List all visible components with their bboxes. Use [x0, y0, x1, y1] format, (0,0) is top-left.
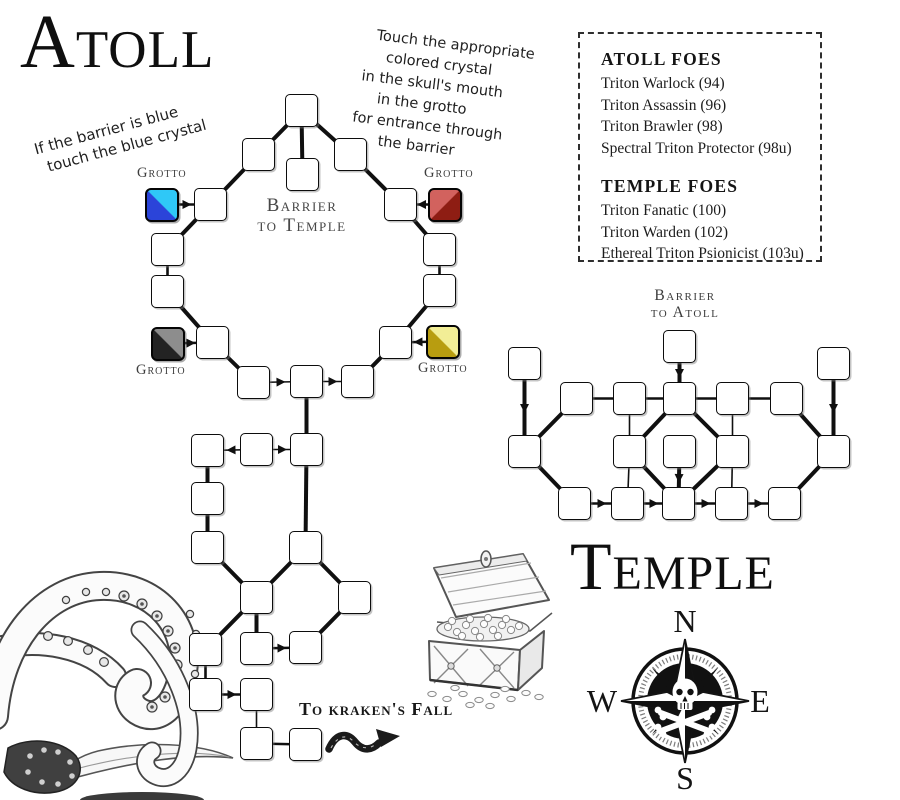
map-connection: [302, 111, 351, 155]
map-connection: [525, 399, 577, 452]
map-connection: [630, 452, 679, 504]
krakens-fall-arrow: [329, 729, 400, 749]
map-connection-arrow: [598, 499, 607, 508]
map-connection: [630, 399, 680, 452]
map-connection: [213, 343, 254, 383]
map-connection: [401, 205, 440, 250]
map-connection: [628, 452, 630, 504]
map-connection-arrow: [650, 499, 659, 508]
map-connection-arrow: [329, 377, 338, 386]
map-connection: [732, 452, 733, 504]
map-connection-arrow: [755, 499, 764, 508]
compass-e-label: E: [750, 683, 770, 719]
map-connection: [306, 598, 355, 648]
kraken-bottom-shadow: [80, 792, 204, 800]
map-connection: [680, 399, 733, 452]
map-connection: [787, 399, 834, 452]
map-connection-arrow: [186, 339, 195, 348]
map-connection-arrow: [520, 404, 529, 413]
map-connection-arrow: [417, 200, 426, 209]
map-connection: [306, 548, 355, 598]
map-connection: [206, 598, 257, 650]
map-connection: [211, 155, 259, 205]
map-connection: [351, 155, 401, 205]
map-connection: [208, 548, 257, 598]
map-connection: [302, 111, 303, 175]
map-connection: [396, 291, 440, 343]
map-connection-arrow: [228, 690, 237, 699]
map-connection-arrow: [675, 474, 684, 483]
compass-s-label: S: [676, 760, 694, 796]
map-page: N E S W Atoll Temple If the barrier is b…: [0, 0, 900, 800]
map-connection-arrow: [277, 644, 286, 653]
compass-n-label: N: [673, 603, 696, 639]
compass-w-label: W: [587, 683, 618, 719]
map-connection-arrow: [183, 200, 192, 209]
map-connection-arrow: [414, 337, 423, 346]
map-connection: [785, 452, 834, 504]
map-connection-arrow: [227, 445, 236, 454]
map-connection: [168, 292, 213, 343]
treasure-chest-art: [428, 551, 552, 709]
map-connection-arrow: [702, 499, 711, 508]
map-connection: [168, 205, 211, 250]
map-connection: [679, 452, 733, 504]
map-connection-arrow: [675, 369, 684, 378]
compass-rose: N E S W: [587, 603, 770, 796]
kraken-tentacles-art: [0, 586, 233, 800]
map-connection-arrow: [276, 378, 285, 387]
map-connections-svg: N E S W: [0, 0, 900, 800]
map-connection-arrow: [829, 404, 838, 413]
map-connection: [306, 450, 307, 548]
map-connection: [525, 452, 575, 504]
map-connection: [257, 744, 306, 745]
map-connection-arrow: [278, 445, 287, 454]
map-connection: [257, 548, 306, 598]
map-connection: [259, 111, 302, 155]
map-connection: [358, 343, 396, 382]
